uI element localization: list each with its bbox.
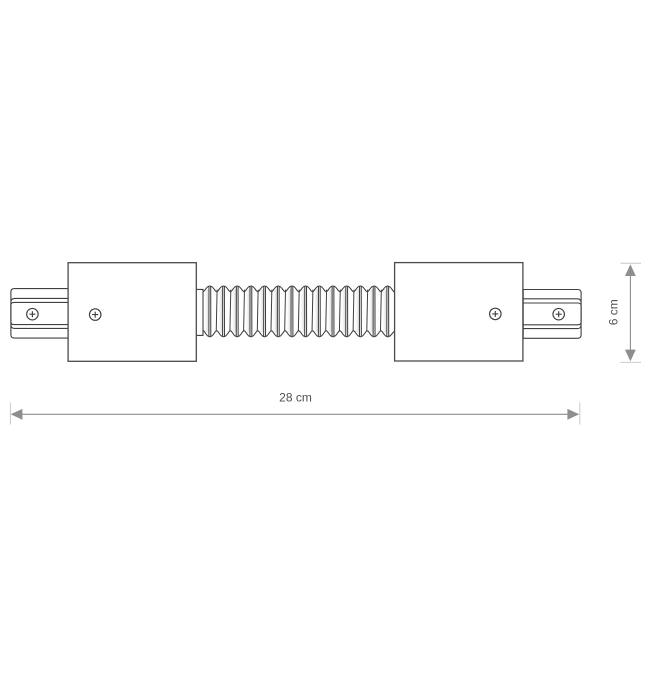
svg-text:28 cm: 28 cm [279, 391, 312, 405]
svg-text:6 cm: 6 cm [607, 299, 621, 325]
